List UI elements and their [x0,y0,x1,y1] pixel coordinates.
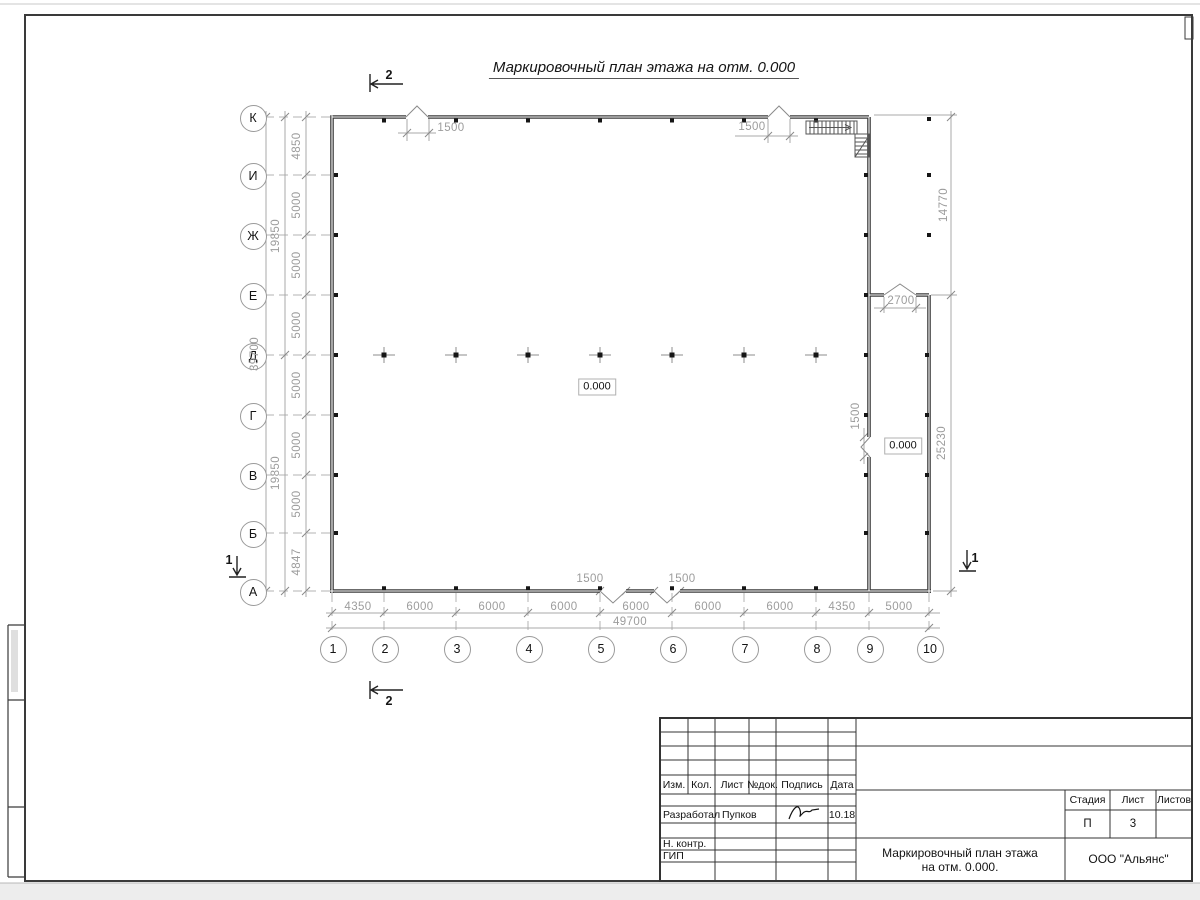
axis-bubble-col-7: 7 [732,636,759,663]
tb-header-list: Лист [721,779,744,791]
axis-bubble-col-4: 4 [516,636,543,663]
tb-header-kol: Кол. [691,779,712,791]
column-crosses [373,347,827,363]
dim-bottom-segment-2: 6000 [406,601,433,613]
dim-bottom-segment-7: 6000 [766,601,793,613]
dim-left-segment-6: 5000 [291,431,303,458]
stairs-icon [806,121,869,157]
dim-bottom-segment-5: 6000 [622,601,649,613]
dim-left-segment-2: 5000 [291,191,303,218]
frame [8,15,1193,881]
tick-marks [262,113,955,632]
dim-right-lower: 25230 [936,426,948,460]
dim-bottom-segment-6: 6000 [694,601,721,613]
margin-stamp-text [11,630,18,692]
tb-ncontrol-label: Н. контр. [663,838,706,850]
dim-bottom-segment-9: 5000 [885,601,912,613]
dim-bottom-segment-1: 4350 [344,601,371,613]
dim-left-subtotal-2: 19850 [270,456,282,490]
drawing-title: Маркировочный план этажа на отм. 0.000 [489,59,799,79]
level-mark-main: 0.000 [578,379,616,396]
axis-bubble-row-8: Б [240,521,267,548]
dim-opening-top-right: 1500 [738,121,765,133]
axis-bubble-col-5: 5 [588,636,615,663]
dim-opening-top-left: 1500 [437,122,464,134]
axis-bubble-col-6: 6 [660,636,687,663]
tb-sheet-label: Лист [1122,794,1145,806]
axis-bubble-col-3: 3 [444,636,471,663]
dim-opening-side: 1500 [850,402,862,429]
axis-bubble-col-9: 9 [857,636,884,663]
dim-left-segment-4: 5000 [291,311,303,338]
walls [330,115,931,593]
axis-bubble-row-2: И [240,163,267,190]
axis-bubble-col-10: 10 [917,636,944,663]
dim-left-segment-5: 5000 [291,371,303,398]
level-mark-extension: 0.000 [884,438,922,455]
dim-bottom-segment-4: 6000 [550,601,577,613]
dim-left-segment-3: 5000 [291,251,303,278]
axis-bubble-row-6: Г [240,403,267,430]
dim-left-segment-7: 5000 [291,490,303,517]
tb-sheets-label: Листов [1157,794,1191,806]
axis-bubble-row-9: А [240,579,267,606]
section-label-2-bottom: 2 [386,694,393,708]
axis-bubble-col-2: 2 [372,636,399,663]
plan-drawing [0,0,1200,900]
tb-sheet-value: 3 [1130,818,1136,830]
dim-left-subtotal-1: 19850 [270,219,282,253]
signature [789,807,819,819]
axis-bubble-row-1: К [240,105,267,132]
tb-stage-label: Стадия [1070,794,1106,806]
dimension-lines [266,111,957,628]
page-edges [0,4,1200,900]
dim-opening-bottom-left: 1500 [576,573,603,585]
tb-header-podpis: Подпись [781,779,823,791]
dim-left-total: 39700 [249,337,261,371]
tb-doc-title-line2: на отм. 0.000. [922,860,999,874]
dim-bottom-segment-3: 6000 [478,601,505,613]
section-label-1-right: 1 [972,551,979,565]
dim-left-segment-1: 4850 [291,132,303,159]
drawing-sheet: Маркировочный план этажа на отм. 0.000 1… [0,0,1200,900]
axis-bubble-row-3: Ж [240,223,267,250]
axis-bubble-row-7: В [240,463,267,490]
axis-bubble-row-4: Е [240,283,267,310]
tb-company: ООО "Альянс" [1088,852,1168,866]
tb-header-izm: Изм. [663,779,686,791]
dim-bottom-total: 49700 [613,616,647,628]
tb-header-data: Дата [830,779,853,791]
dim-opening-bottom-right: 1500 [668,573,695,585]
tb-developed-date: 10.18 [829,809,855,821]
axis-bubble-col-1: 1 [320,636,347,663]
tb-doc-title-line1: Маркировочный план этажа [882,846,1038,860]
tb-gip-label: ГИП [663,850,684,862]
dim-opening-extension: 2700 [887,295,914,307]
tb-developed-label: Разработал [663,809,720,821]
section-label-2-top: 2 [386,68,393,82]
axis-bubble-col-8: 8 [804,636,831,663]
dim-right-upper: 14770 [938,188,950,222]
tb-developed-name: Пупков [722,809,757,821]
dim-bottom-segment-8: 4350 [828,601,855,613]
tb-stage-value: П [1083,818,1091,830]
section-label-1-left: 1 [226,553,233,567]
tb-header-ndok: №док. [747,779,778,791]
dim-left-segment-8: 4847 [291,548,303,575]
axis-lines [265,117,929,635]
column-markers [334,117,931,590]
